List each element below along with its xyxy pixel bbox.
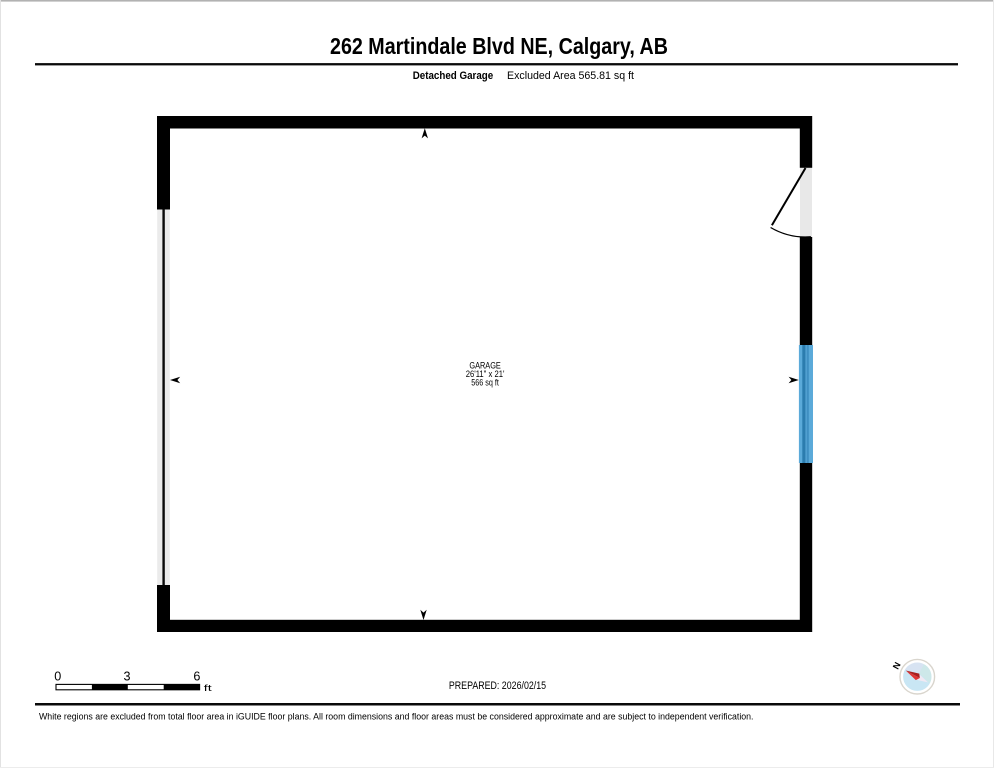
svg-text:0: 0 [54, 670, 61, 684]
svg-text:Detached Garage: Detached Garage [413, 70, 494, 82]
svg-text:6: 6 [193, 670, 200, 684]
svg-text:566 sq ft: 566 sq ft [471, 377, 499, 387]
svg-text:White regions are excluded fro: White regions are excluded from total fl… [39, 712, 754, 722]
svg-text:PREPARED: 2026/02/15: PREPARED: 2026/02/15 [449, 680, 546, 692]
svg-text:ft: ft [204, 683, 212, 694]
svg-text:262 Martindale Blvd NE, Calgar: 262 Martindale Blvd NE, Calgary, AB [330, 33, 668, 59]
svg-text:3: 3 [123, 670, 130, 684]
svg-text:Excluded Area 565.81 sq ft: Excluded Area 565.81 sq ft [507, 70, 635, 82]
